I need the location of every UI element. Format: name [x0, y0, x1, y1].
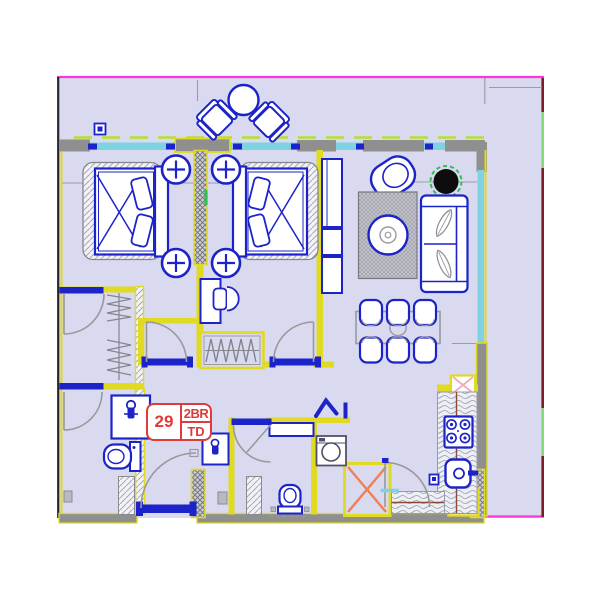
unit-type-column: 2BR TD — [182, 405, 210, 439]
coffee-table — [369, 216, 408, 255]
balcony-table — [229, 85, 259, 115]
bedroom-1 — [83, 163, 168, 260]
toilet — [104, 442, 141, 471]
bedroom-divider-column — [194, 151, 207, 265]
double-bed — [95, 167, 168, 257]
floor-plan-drawing — [0, 0, 600, 600]
stove — [445, 417, 473, 448]
mirror-cabinet — [270, 423, 314, 436]
unit-type: 2BR — [182, 405, 210, 423]
sink-vanity — [112, 396, 151, 439]
washing-machine — [317, 436, 347, 466]
wall-pier — [363, 140, 424, 152]
window-glass-band-right — [478, 170, 485, 343]
wall-hatched-block — [119, 477, 135, 515]
unit-label: 29 2BR TD — [146, 403, 212, 441]
wall-pier — [297, 140, 336, 152]
unit-number: 29 — [148, 405, 182, 439]
wall-tick — [344, 403, 348, 419]
wardrobe — [201, 333, 264, 369]
switch-symbol — [64, 491, 72, 502]
wall-pier — [59, 140, 90, 152]
floor-plan-canvas: 29 2BR TD — [0, 0, 600, 600]
wall-marker-green — [205, 190, 208, 205]
wall-hatched-block — [247, 477, 262, 515]
double-bed — [233, 167, 307, 257]
switch-symbol — [218, 492, 227, 504]
unit-suffix: TD — [182, 423, 210, 439]
sofa — [421, 196, 468, 293]
right-wall — [477, 150, 488, 516]
tv-console — [322, 159, 342, 293]
